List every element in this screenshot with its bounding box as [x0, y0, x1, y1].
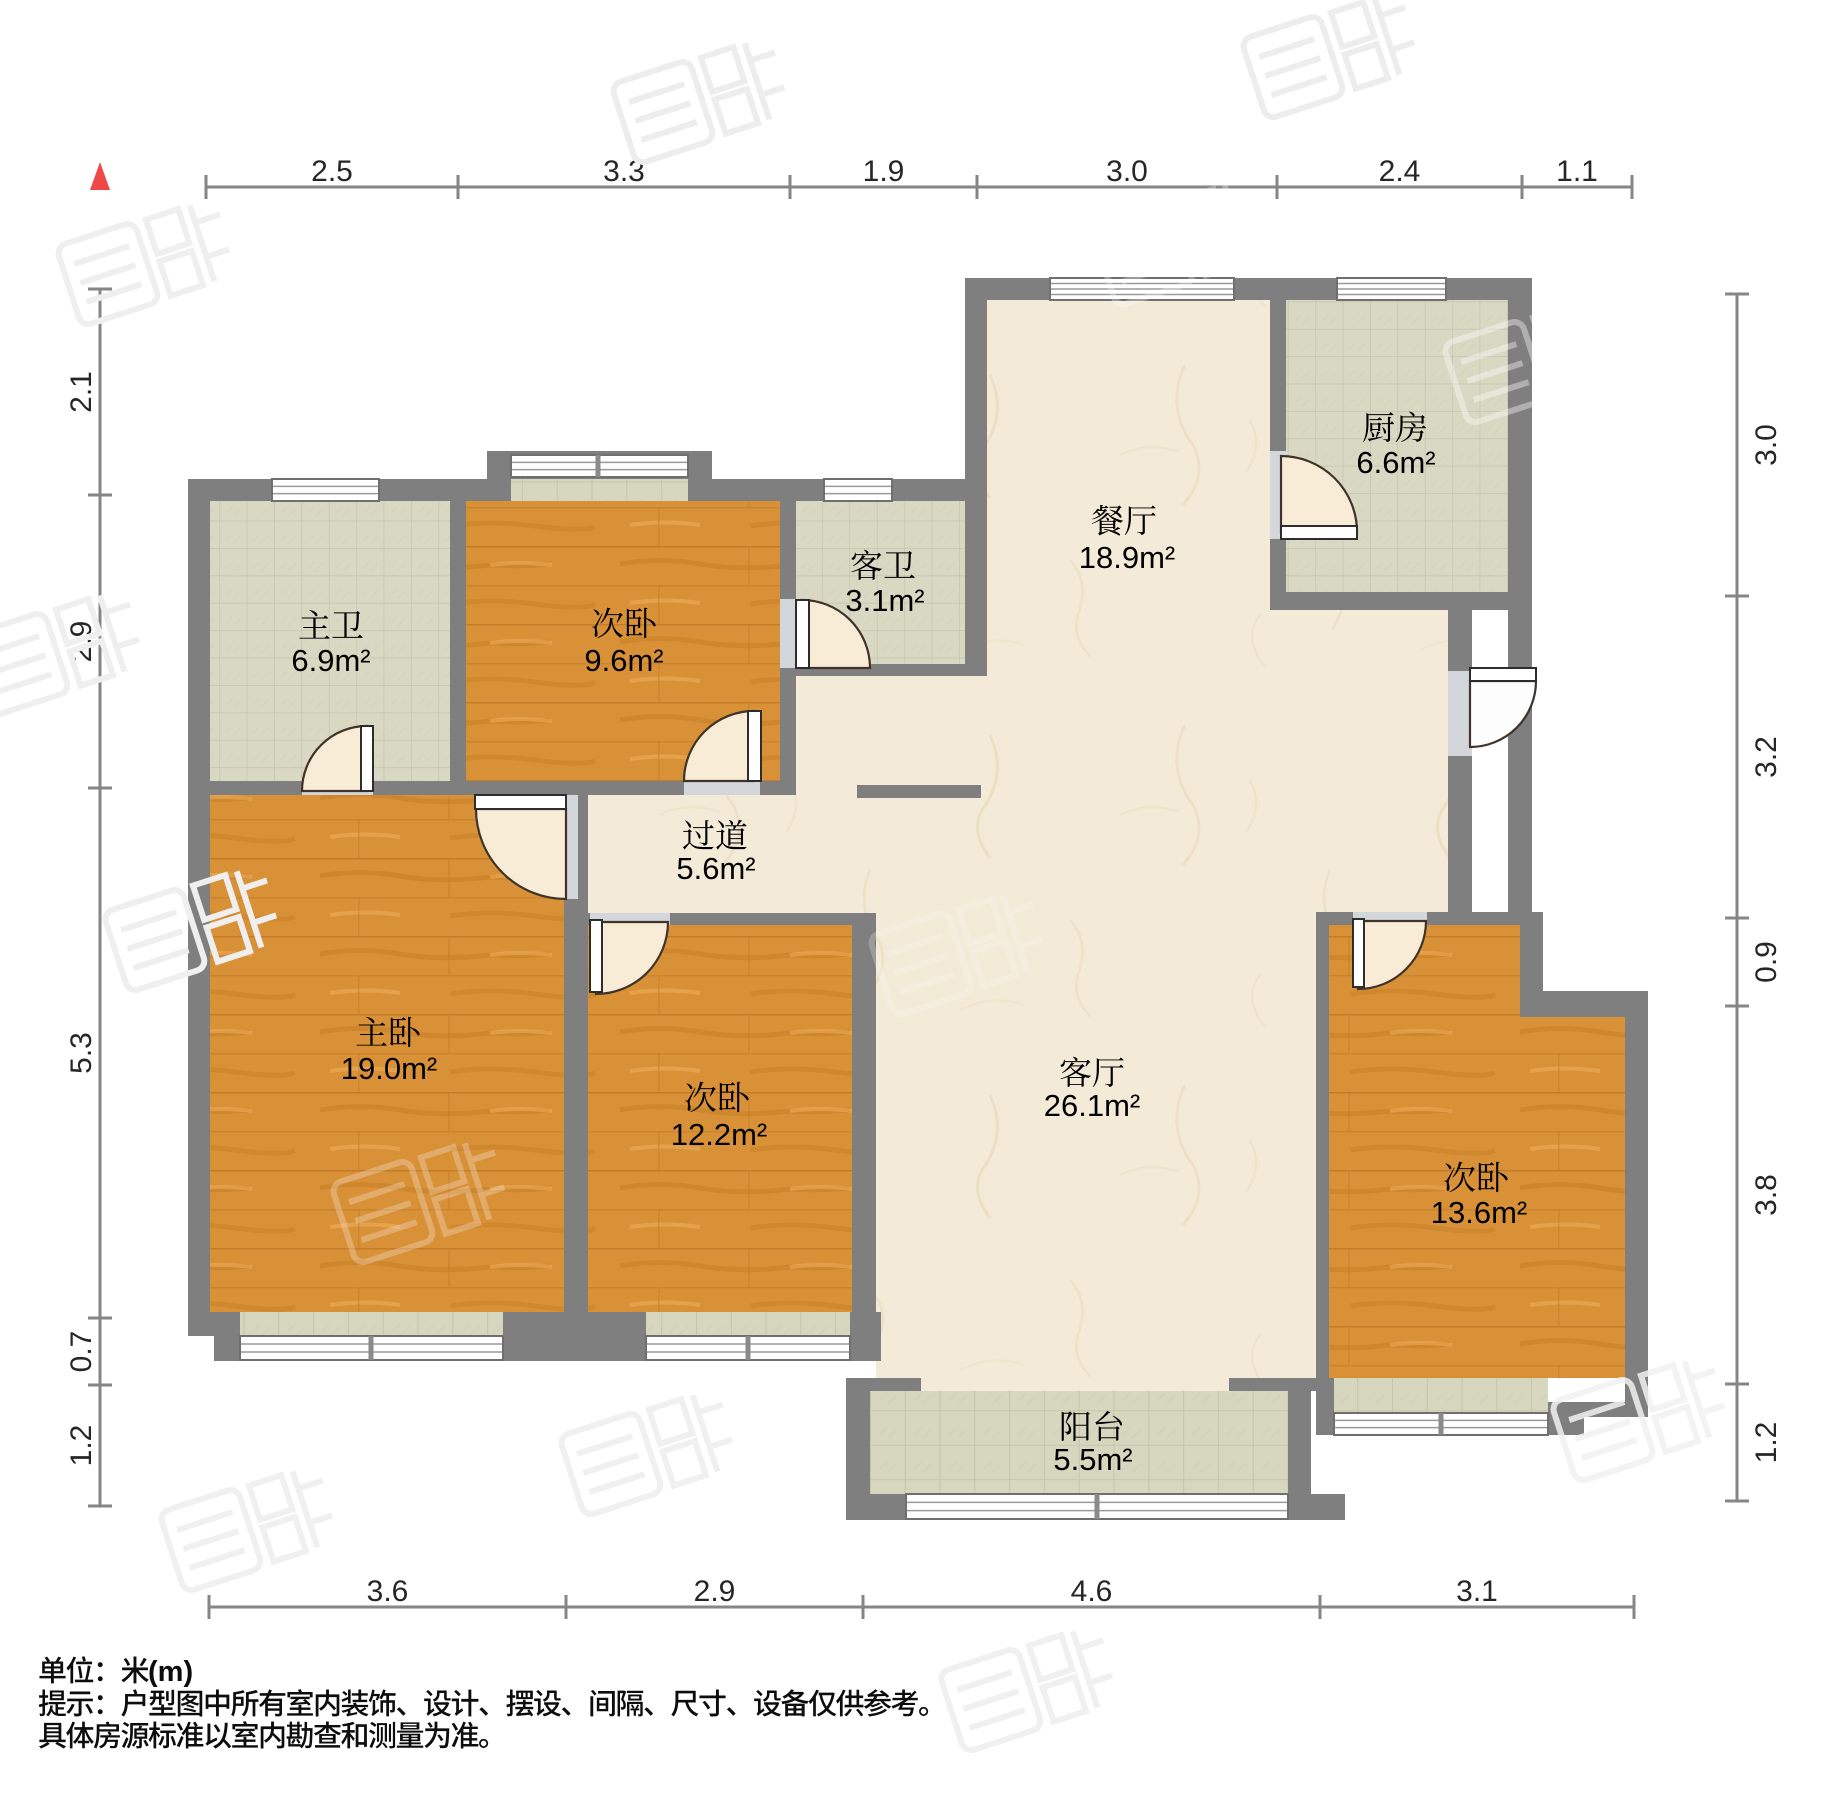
svg-text:6.9m²: 6.9m² [291, 643, 370, 678]
svg-text:19.0m²: 19.0m² [341, 1051, 437, 1086]
svg-text:1.2: 1.2 [1750, 1422, 1783, 1464]
svg-text:0.7: 0.7 [65, 1331, 98, 1373]
svg-text:3.6: 3.6 [367, 1575, 409, 1608]
svg-text:1.9: 1.9 [863, 155, 905, 188]
svg-text:2.1: 2.1 [65, 371, 98, 413]
svg-text:5.6m²: 5.6m² [676, 851, 755, 886]
svg-text:3.0: 3.0 [1750, 424, 1783, 466]
svg-text:4.6: 4.6 [1071, 1575, 1113, 1608]
svg-text:(m): (m) [148, 1656, 193, 1688]
svg-text:3.1: 3.1 [1456, 1575, 1498, 1608]
svg-text:12.2m²: 12.2m² [671, 1117, 767, 1152]
svg-text:1.1: 1.1 [1556, 155, 1598, 188]
svg-text:3.8: 3.8 [1750, 1174, 1783, 1216]
svg-text:3.2: 3.2 [1750, 736, 1783, 778]
svg-text:26.1m²: 26.1m² [1044, 1088, 1140, 1123]
svg-text:0.9: 0.9 [1750, 941, 1783, 983]
svg-text:5.5m²: 5.5m² [1053, 1442, 1132, 1477]
svg-text:2.9: 2.9 [694, 1575, 736, 1608]
svg-text:3.0: 3.0 [1106, 155, 1148, 188]
svg-text:1.2: 1.2 [65, 1425, 98, 1467]
svg-text:13.6m²: 13.6m² [1431, 1195, 1527, 1230]
svg-text:2.4: 2.4 [1379, 155, 1421, 188]
svg-text:9.6m²: 9.6m² [584, 643, 663, 678]
svg-text:5.3: 5.3 [65, 1032, 98, 1074]
svg-text:2.5: 2.5 [311, 155, 353, 188]
svg-text:18.9m²: 18.9m² [1079, 540, 1175, 575]
svg-text:3.1m²: 3.1m² [845, 583, 924, 618]
svg-text:6.6m²: 6.6m² [1356, 445, 1435, 480]
